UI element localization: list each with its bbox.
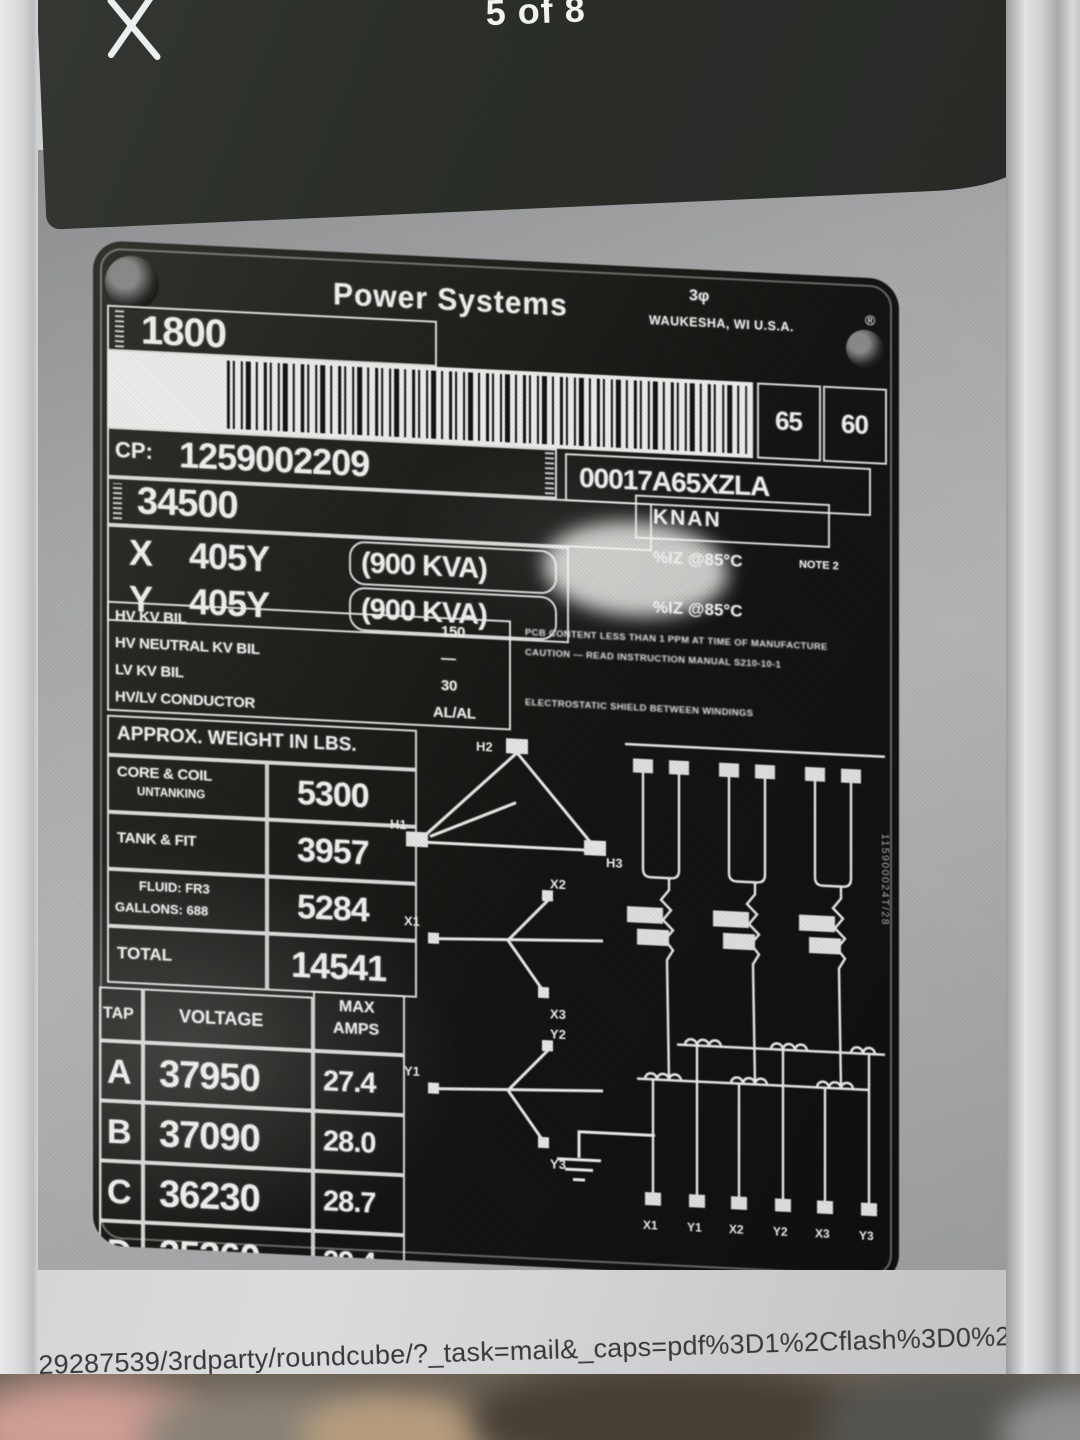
weight-row-value: 5284 bbox=[297, 888, 369, 931]
tap-letter: A bbox=[107, 1053, 131, 1093]
bil-row-value: — bbox=[441, 650, 456, 668]
weight-row-value: 14541 bbox=[291, 944, 386, 991]
weight-row-value: 3957 bbox=[297, 831, 369, 874]
photo-background-bottom bbox=[0, 1374, 1080, 1440]
tap-voltage: 37090 bbox=[159, 1113, 260, 1161]
tap-voltage: 35360 bbox=[159, 1233, 260, 1270]
tap-voltage: 37950 bbox=[159, 1053, 260, 1101]
nameplate-photo: Power Systems 3φ WAUKESHA, WI U.S.A. ® 1… bbox=[38, 150, 1010, 1270]
tap-amps: 27.4 bbox=[323, 1065, 375, 1101]
rating-x-voltage: 405Y bbox=[189, 535, 269, 581]
registered-mark: ® bbox=[865, 312, 875, 329]
nameplate: Power Systems 3φ WAUKESHA, WI U.S.A. ® 1… bbox=[93, 240, 899, 1270]
impedance-note: NOTE 2 bbox=[799, 559, 839, 573]
winding-schematic: X1 Y1 X2 Y2 X3 Y3 bbox=[623, 736, 887, 1269]
tap-col-header: TAP bbox=[103, 1004, 134, 1024]
tap-voltage: 36230 bbox=[159, 1173, 260, 1221]
delta-right-label: H3 bbox=[606, 855, 623, 871]
frequency-value: 60 bbox=[841, 409, 868, 441]
paper-edge-right bbox=[1006, 0, 1080, 1392]
phase-symbol: 3φ bbox=[689, 287, 709, 306]
hv-voltage: 34500 bbox=[137, 480, 238, 528]
tap-letter: D bbox=[107, 1233, 131, 1270]
wye-x-left-label: X1 bbox=[404, 913, 420, 929]
terminal-label: X1 bbox=[643, 1218, 658, 1233]
delta-top-label: H2 bbox=[476, 739, 493, 755]
terminal-label: Y3 bbox=[859, 1228, 874, 1243]
delta-left-label: H1 bbox=[390, 817, 407, 833]
image-counter: 5 of 8 bbox=[485, 0, 587, 34]
weight-row-value: 5300 bbox=[297, 774, 369, 817]
caution-notice: CAUTION — READ INSTRUCTION MANUAL S210-1… bbox=[525, 647, 781, 671]
micro-label-stub bbox=[115, 309, 124, 347]
printed-page: 5 of 8 Power Systems 3φ WAUKESHA, WI U.S… bbox=[0, 0, 1080, 1440]
terminal-label: X3 bbox=[815, 1226, 830, 1241]
close-icon[interactable] bbox=[100, 0, 167, 65]
mounting-hole-left bbox=[105, 255, 159, 312]
temp-rise-value: 65 bbox=[775, 405, 802, 437]
max-header: MAX bbox=[339, 998, 375, 1018]
tap-letter: B bbox=[107, 1113, 131, 1153]
bil-row-value: 30 bbox=[441, 677, 457, 695]
mounting-hole-right bbox=[846, 329, 884, 369]
factory-location: WAUKESHA, WI U.S.A. bbox=[649, 313, 794, 334]
printed-url: s0629287539/3rdparty/roundcube/?_task=ma… bbox=[0, 1313, 1080, 1383]
rating-x-winding: X bbox=[129, 532, 152, 575]
wye-y-left-label: Y1 bbox=[404, 1063, 420, 1079]
phasor-diagrams: H2 H1 H3 X2 X1 X3 Y2 Y1 Y3 bbox=[388, 724, 628, 1176]
background-blob bbox=[470, 1374, 870, 1440]
class-value: 1800 bbox=[141, 308, 226, 357]
bil-row-label: HV KV BIL bbox=[115, 607, 186, 627]
rating-x-kva: (900 KVA) bbox=[361, 547, 487, 586]
terminal-label: Y1 bbox=[687, 1220, 702, 1235]
bil-row-value: 150 bbox=[441, 623, 465, 641]
wye-x-top-label: X2 bbox=[550, 876, 566, 892]
plate-side-code: 115900024T/28 bbox=[879, 833, 891, 1054]
amps-header: AMPS bbox=[333, 1020, 379, 1040]
paper-edge-left bbox=[0, 0, 38, 1392]
bil-row-label: LV KV BIL bbox=[115, 661, 184, 681]
wye-y-top-label: Y2 bbox=[550, 1026, 566, 1042]
shield-notice: ELECTROSTATIC SHIELD BETWEEN WINDINGS bbox=[525, 697, 753, 719]
weight-row-label: TOTAL bbox=[117, 943, 172, 966]
terminal-label: X2 bbox=[729, 1222, 744, 1237]
tap-amps: 28.7 bbox=[323, 1185, 375, 1221]
serial-label: CP: bbox=[115, 437, 153, 465]
impedance-line2: %IZ @85°C bbox=[653, 597, 743, 621]
tap-letter: C bbox=[107, 1173, 131, 1213]
wye-x-bottom-label: X3 bbox=[550, 1006, 566, 1022]
tap-amps: 28.0 bbox=[323, 1125, 375, 1161]
bil-row-value: AL/AL bbox=[433, 704, 476, 723]
micro-label-stub bbox=[545, 452, 554, 494]
tap-amps: 29.4 bbox=[323, 1245, 375, 1270]
micro-label-stub bbox=[113, 483, 122, 519]
voltage-col-header: VOLTAGE bbox=[179, 1006, 263, 1031]
terminal-label: Y2 bbox=[773, 1224, 788, 1239]
